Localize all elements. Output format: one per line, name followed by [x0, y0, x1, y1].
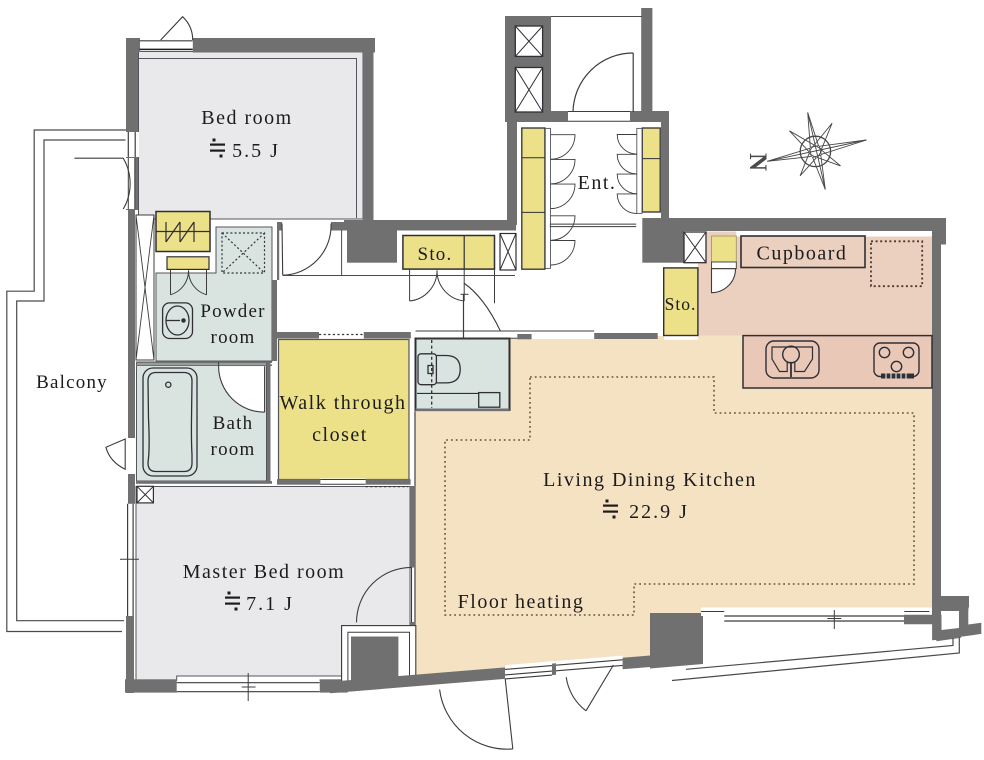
- svg-text:Bed room: Bed room: [201, 107, 292, 129]
- svg-text:closet: closet: [312, 424, 368, 446]
- svg-text:22.9 J: 22.9 J: [629, 501, 689, 523]
- svg-text:N: N: [744, 153, 771, 171]
- svg-text:7.1 J: 7.1 J: [246, 593, 294, 615]
- svg-text:Walk through: Walk through: [280, 392, 407, 414]
- svg-text:Sto.: Sto.: [418, 244, 453, 265]
- svg-text:Master Bed room: Master Bed room: [183, 561, 345, 583]
- svg-text:Sto.: Sto.: [665, 294, 697, 314]
- svg-text:5.5 J: 5.5 J: [232, 140, 280, 162]
- svg-text:Bath: Bath: [213, 413, 254, 434]
- svg-text:room: room: [211, 327, 256, 348]
- svg-text:Cupboard: Cupboard: [757, 243, 848, 265]
- svg-text:Ent.: Ent.: [578, 172, 617, 194]
- svg-text:Balcony: Balcony: [36, 372, 108, 393]
- svg-text:Powder: Powder: [200, 301, 265, 322]
- svg-text:Floor heating: Floor heating: [458, 591, 585, 613]
- svg-text:Living Dining Kitchen: Living Dining Kitchen: [543, 469, 757, 491]
- svg-text:room: room: [211, 439, 256, 460]
